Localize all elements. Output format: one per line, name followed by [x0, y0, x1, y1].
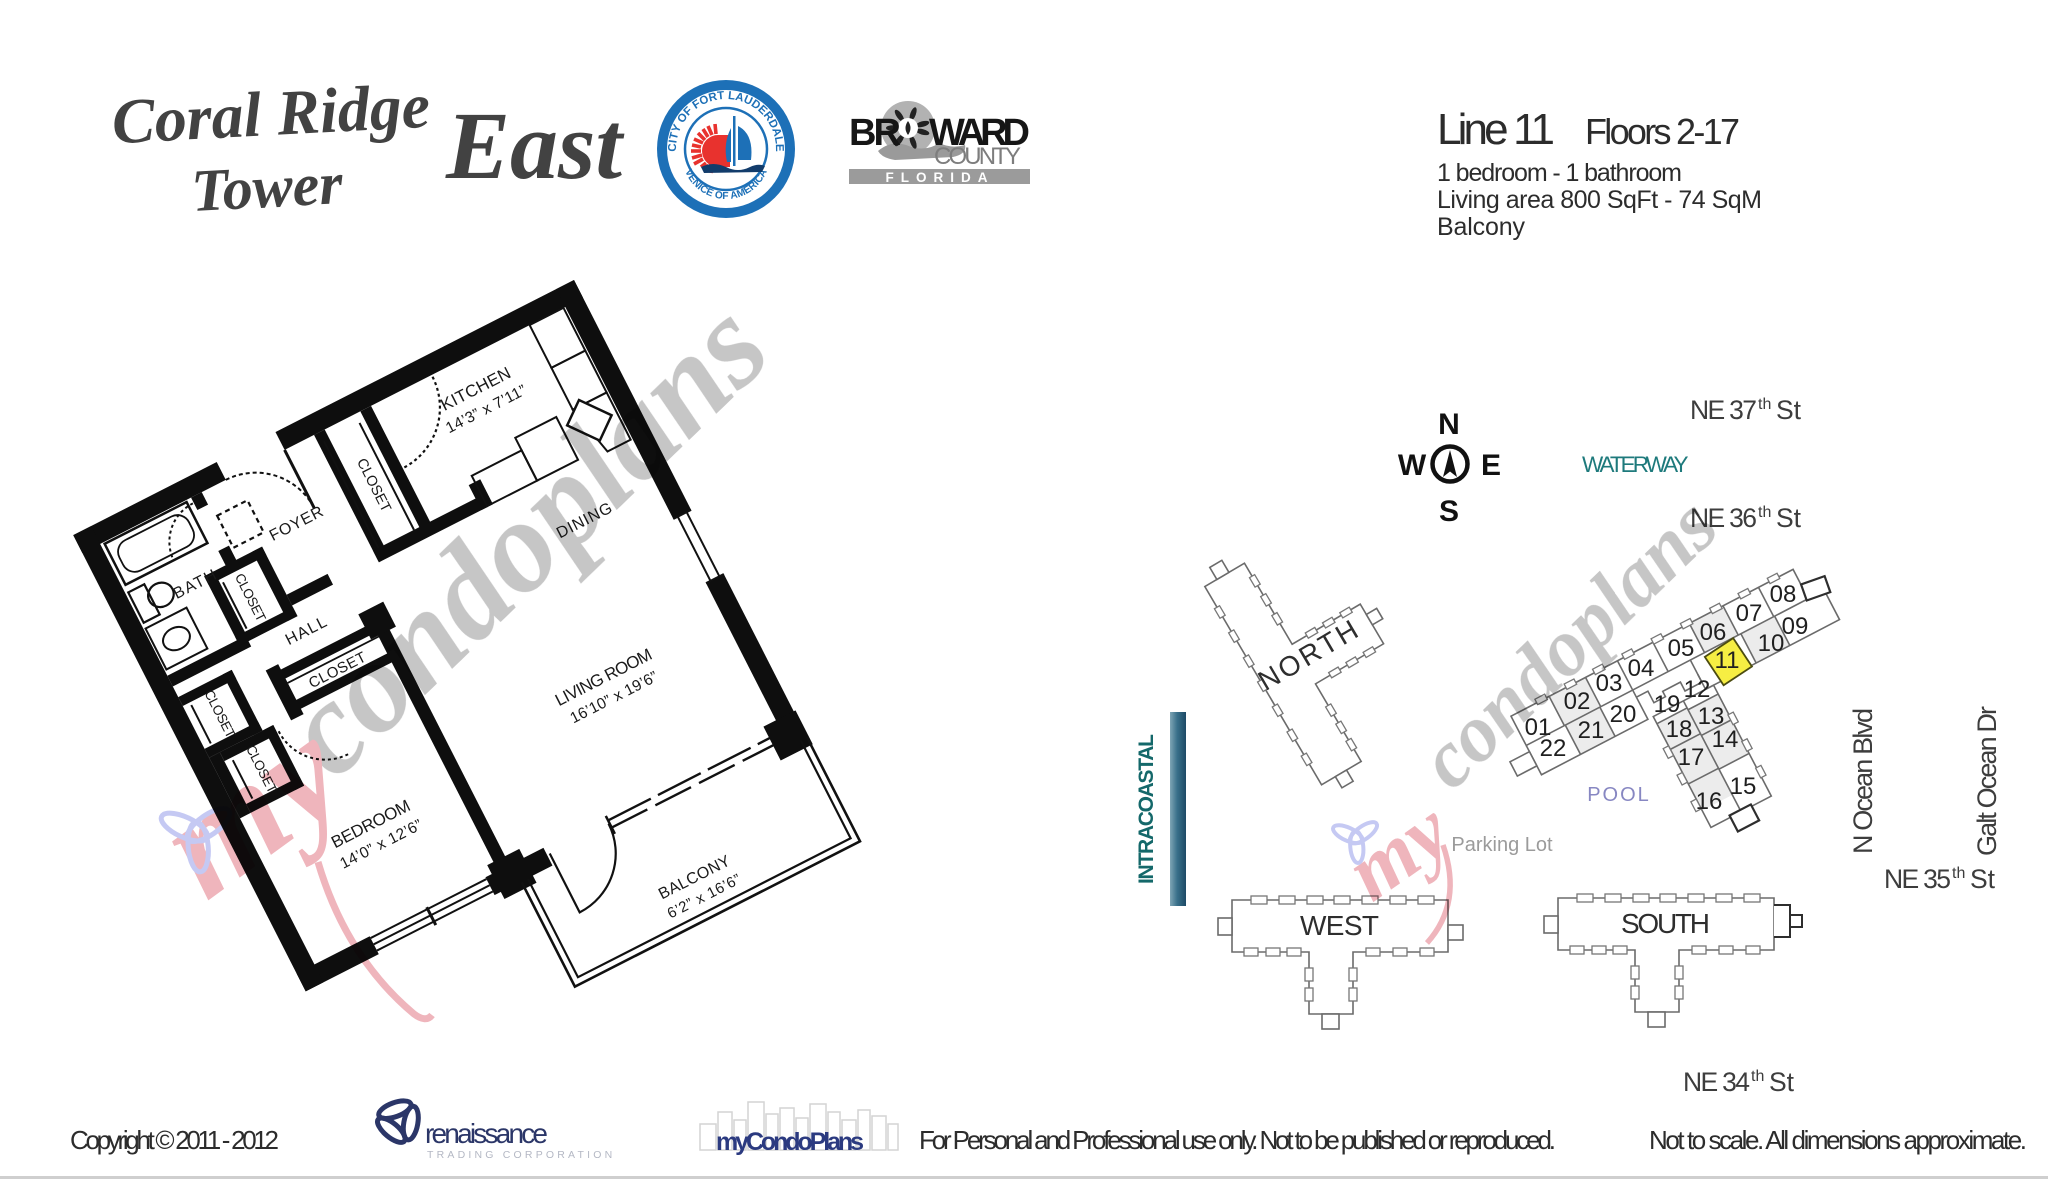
svg-text:Balcony: Balcony	[1437, 213, 1526, 241]
svg-text:E: E	[1481, 449, 1501, 482]
svg-text:10: 10	[1758, 630, 1785, 657]
svg-text:SOUTH: SOUTH	[1621, 908, 1711, 939]
svg-text:09: 09	[1782, 613, 1809, 640]
svg-text:For Personal and Professional: For Personal and Professional use only. …	[919, 1125, 1556, 1155]
svg-text:12: 12	[1684, 676, 1711, 703]
svg-text:Not to scale. All dimensions: Not to scale. All dimensions approximate…	[1649, 1125, 2027, 1155]
svg-text:St: St	[1769, 1067, 1795, 1097]
svg-text:COUNTY: COUNTY	[934, 143, 1021, 170]
svg-text:FLORIDA: FLORIDA	[886, 170, 995, 185]
svg-text:20: 20	[1610, 701, 1637, 728]
svg-text:Galt Ocean Dr: Galt Ocean Dr	[1972, 706, 2002, 856]
svg-text:th: th	[1952, 865, 1965, 882]
svg-text:08: 08	[1770, 581, 1797, 608]
svg-text:1 bedroom - 1 bathroom: 1 bedroom - 1 bathroom	[1437, 159, 1682, 187]
svg-text:NE 37: NE 37	[1690, 395, 1757, 425]
svg-text:WEST: WEST	[1300, 910, 1380, 941]
svg-text:St: St	[1776, 503, 1802, 533]
svg-text:NE 35: NE 35	[1884, 864, 1951, 894]
svg-text:th: th	[1751, 1068, 1764, 1085]
svg-text:22: 22	[1540, 735, 1567, 762]
svg-text:18: 18	[1666, 716, 1693, 743]
svg-text:W: W	[1398, 449, 1427, 482]
svg-text:04: 04	[1628, 655, 1655, 682]
svg-text:05: 05	[1668, 635, 1695, 662]
svg-text:TRADING CORPORATION: TRADING CORPORATION	[427, 1149, 615, 1161]
svg-text:myCondoPlans: myCondoPlans	[716, 1128, 864, 1156]
svg-text:11: 11	[1715, 647, 1740, 674]
svg-text:07: 07	[1736, 600, 1763, 627]
svg-text:St: St	[1970, 864, 1996, 894]
svg-text:BR: BR	[849, 112, 901, 154]
svg-text:St: St	[1776, 395, 1802, 425]
svg-text:19: 19	[1654, 691, 1681, 718]
svg-text:Parking Lot: Parking Lot	[1451, 834, 1553, 856]
svg-text:Tower: Tower	[190, 150, 345, 224]
svg-text:Living area 800 SqFt - 74 Sq: Living area 800 SqFt - 74 SqM	[1437, 186, 1762, 214]
svg-text:21: 21	[1578, 717, 1605, 744]
svg-text:14: 14	[1712, 726, 1739, 753]
svg-text:Line 11: Line 11	[1437, 105, 1555, 154]
svg-text:Floors 2-17: Floors 2-17	[1585, 111, 1740, 152]
svg-text:WATERWAY: WATERWAY	[1582, 452, 1689, 477]
svg-text:INTRACOASTAL: INTRACOASTAL	[1135, 734, 1158, 884]
svg-text:th: th	[1758, 504, 1771, 521]
svg-text:06: 06	[1700, 619, 1727, 646]
svg-text:POOL: POOL	[1587, 784, 1651, 806]
svg-text:NE 34: NE 34	[1683, 1067, 1750, 1097]
svg-text:16: 16	[1696, 788, 1723, 815]
svg-text:17: 17	[1678, 744, 1705, 771]
svg-text:renaissance: renaissance	[425, 1118, 548, 1149]
svg-text:N: N	[1438, 408, 1460, 441]
svg-text:15: 15	[1730, 773, 1757, 800]
svg-text:S: S	[1439, 495, 1459, 528]
svg-text:N Ocean Blvd: N Ocean Blvd	[1848, 708, 1878, 854]
svg-text:East: East	[445, 92, 625, 199]
svg-text:Copyright © 2011 - 2012: Copyright © 2011 - 2012	[70, 1125, 279, 1155]
svg-text:th: th	[1758, 396, 1771, 413]
